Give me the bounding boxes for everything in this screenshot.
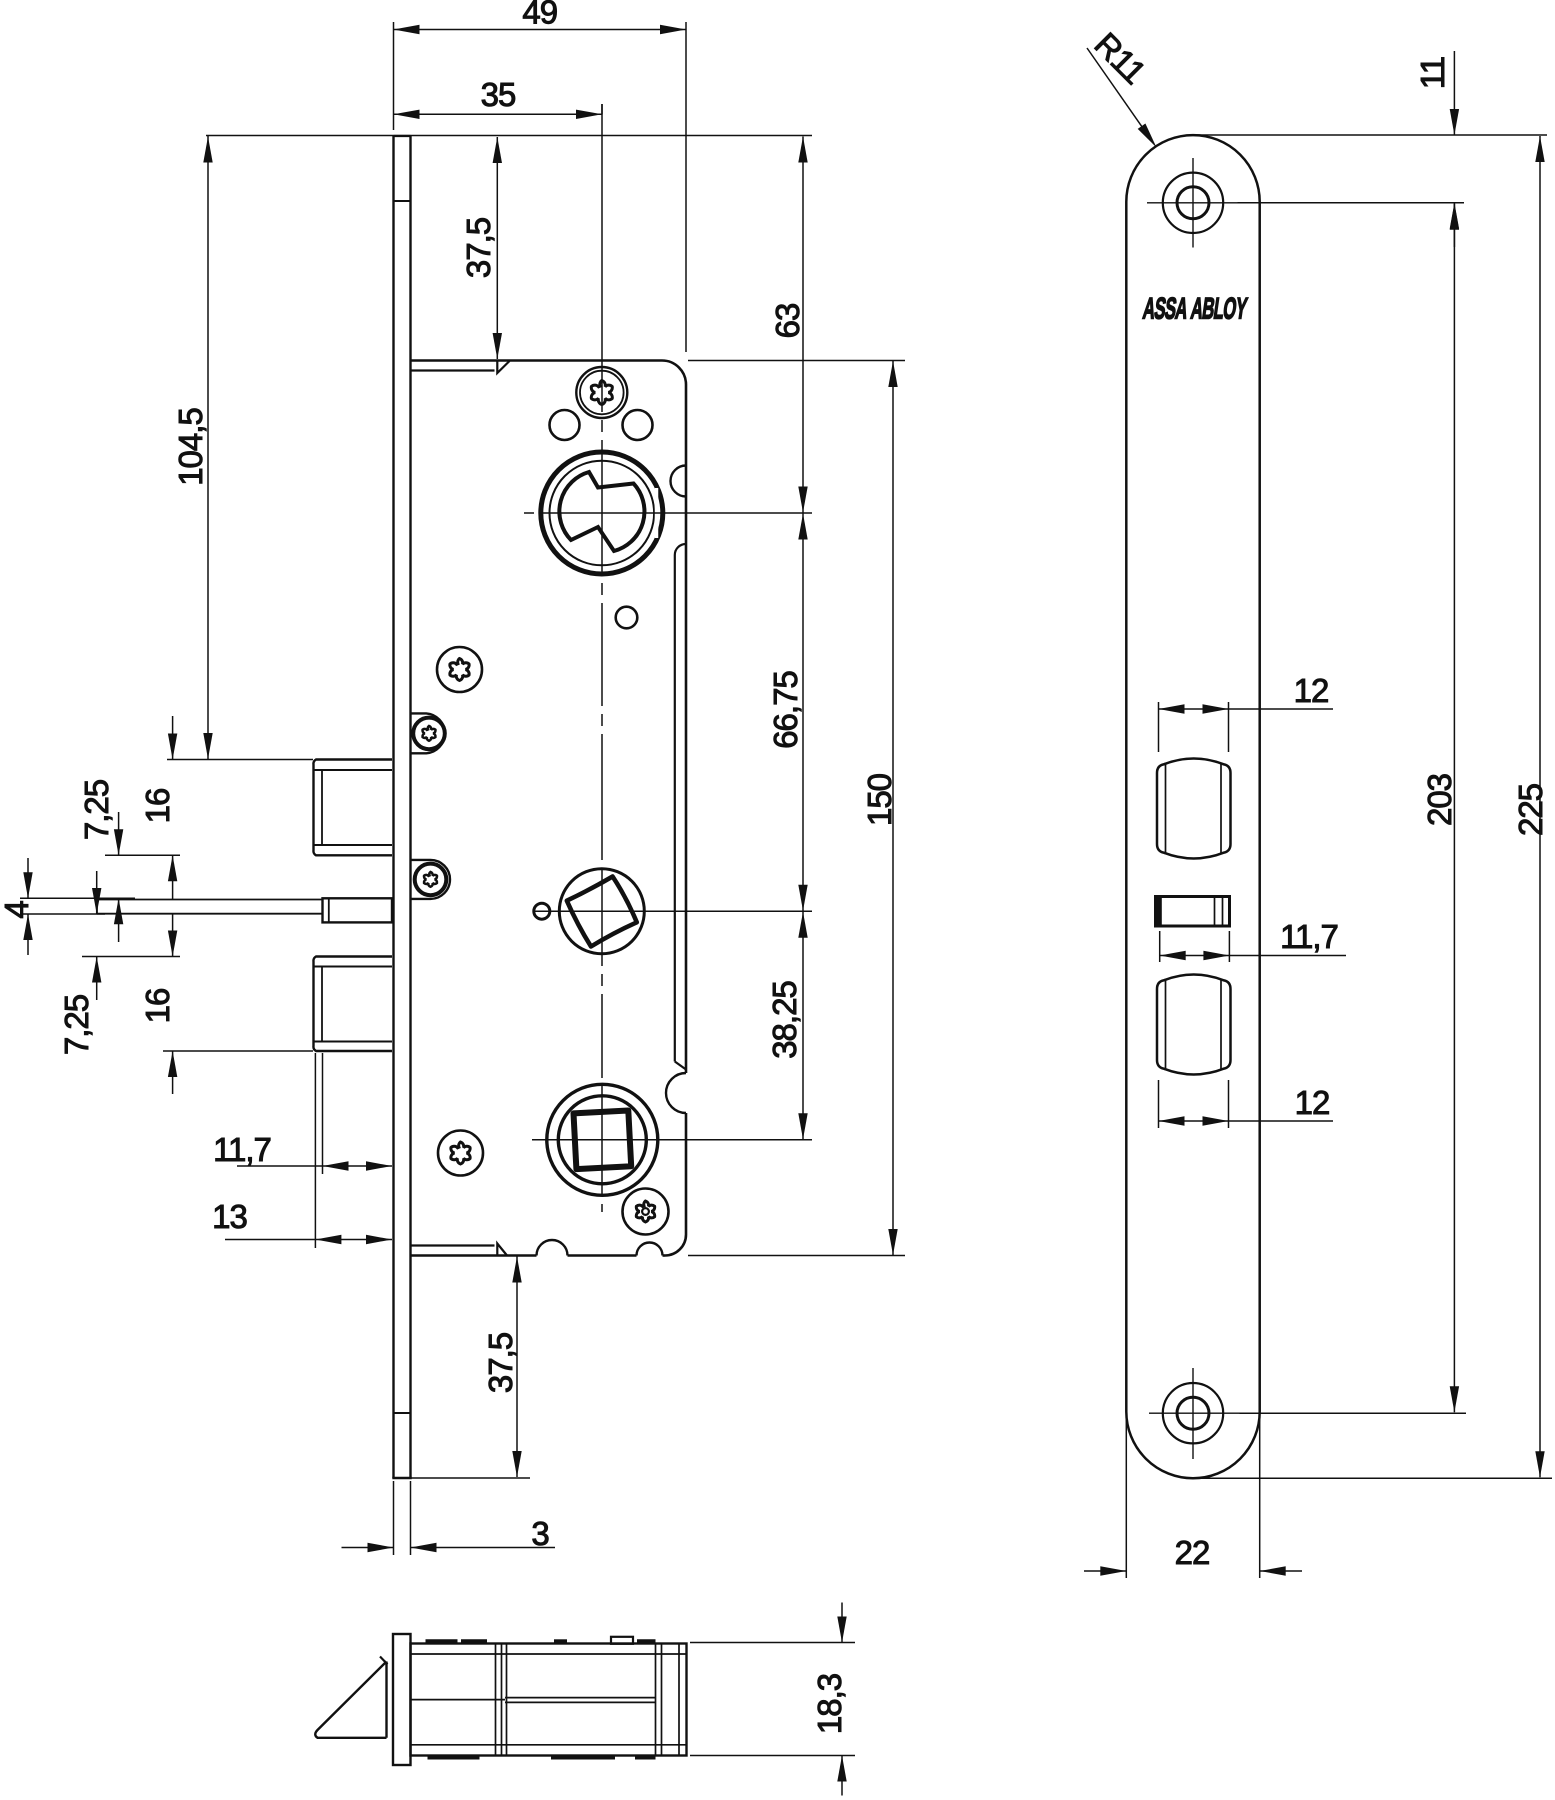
svg-text:R11: R11 bbox=[1088, 25, 1153, 90]
svg-text:11,7: 11,7 bbox=[213, 1131, 271, 1168]
svg-text:12: 12 bbox=[1295, 1084, 1330, 1121]
svg-text:104,5: 104,5 bbox=[172, 408, 209, 486]
svg-text:63: 63 bbox=[769, 304, 806, 339]
svg-text:11,7: 11,7 bbox=[1280, 918, 1338, 955]
svg-text:66,75: 66,75 bbox=[767, 671, 804, 749]
svg-text:7,25: 7,25 bbox=[58, 995, 95, 1055]
svg-text:18,3: 18,3 bbox=[811, 1674, 848, 1734]
svg-text:16: 16 bbox=[139, 789, 176, 824]
svg-text:150: 150 bbox=[861, 773, 898, 826]
svg-text:12: 12 bbox=[1294, 672, 1329, 709]
svg-text:203: 203 bbox=[1421, 774, 1458, 826]
svg-text:37,5: 37,5 bbox=[482, 1333, 519, 1393]
svg-text:3: 3 bbox=[531, 1515, 548, 1552]
svg-text:38,25: 38,25 bbox=[766, 981, 803, 1059]
svg-text:7,25: 7,25 bbox=[78, 780, 115, 840]
svg-text:37,5: 37,5 bbox=[460, 218, 497, 278]
svg-text:22: 22 bbox=[1175, 1534, 1210, 1571]
svg-text:35: 35 bbox=[481, 76, 516, 113]
svg-text:49: 49 bbox=[522, 0, 557, 31]
svg-text:225: 225 bbox=[1512, 784, 1549, 836]
svg-text:4: 4 bbox=[0, 901, 35, 919]
svg-text:16: 16 bbox=[139, 989, 176, 1024]
svg-text:11: 11 bbox=[1414, 57, 1451, 89]
svg-text:ASSA ABLOY: ASSA ABLOY bbox=[1141, 293, 1249, 326]
svg-text:13: 13 bbox=[212, 1198, 247, 1235]
